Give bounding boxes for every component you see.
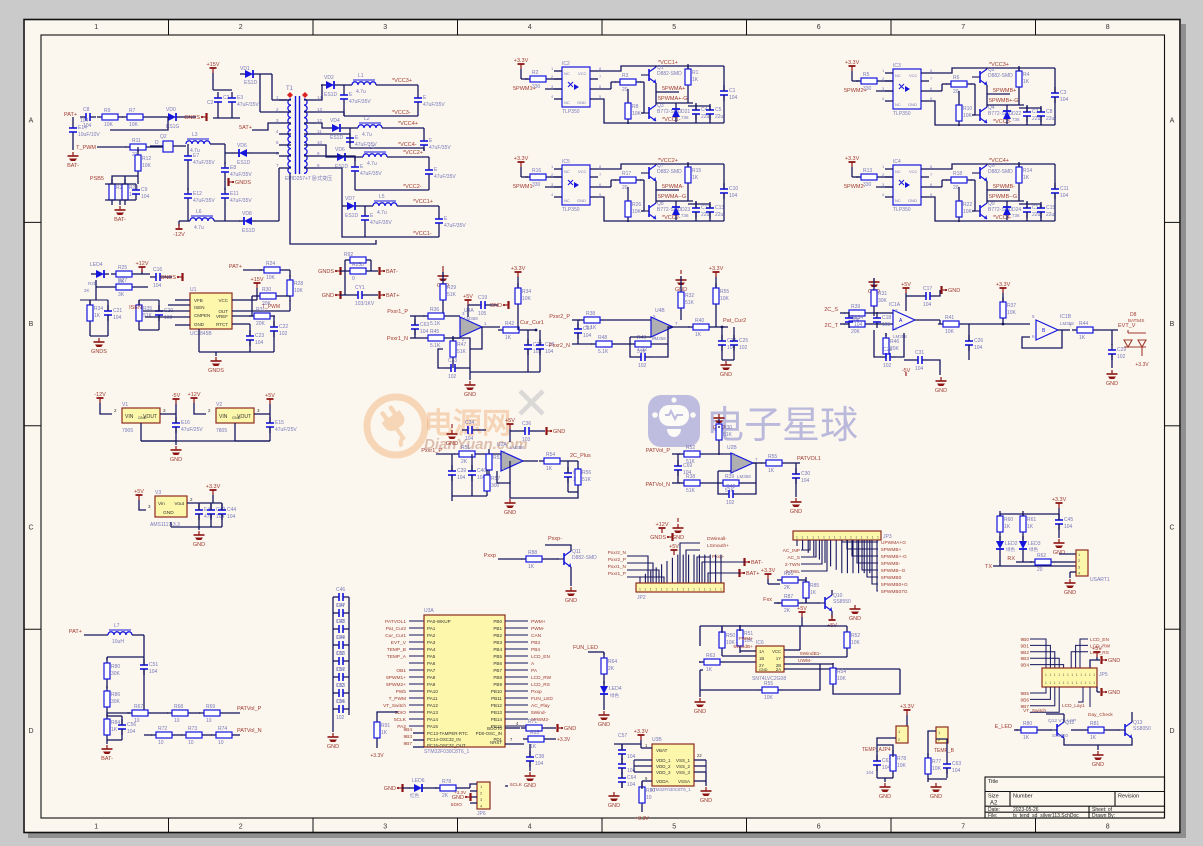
svg-text:IC4: IC4: [893, 159, 901, 165]
svg-text:SS8050: SS8050: [1052, 733, 1069, 738]
svg-text:LM358: LM358: [510, 445, 524, 450]
svg-text:R11: R11: [132, 138, 141, 144]
svg-text:GND: GND: [1092, 762, 1104, 768]
svg-text:1K: 1K: [546, 466, 553, 472]
svg-text:EVT_V: EVT_V: [1118, 323, 1136, 329]
svg-text:E3: E3: [237, 95, 243, 101]
svg-text:10K: 10K: [945, 329, 955, 335]
svg-text:PB14: PB14: [491, 717, 503, 722]
svg-text:9B3: 9B3: [403, 734, 412, 740]
svg-text:1: 1: [828, 536, 830, 540]
svg-text:4.7u: 4.7u: [194, 225, 204, 231]
svg-text:-5V: -5V: [902, 368, 911, 374]
svg-text:PB10: PB10: [491, 689, 503, 694]
svg-text:BAT-: BAT-: [67, 163, 79, 169]
svg-text:PB0: PB0: [493, 619, 502, 624]
svg-text:C33: C33: [448, 358, 457, 364]
svg-text:UPWMA+G: UPWMA+G: [881, 540, 906, 546]
svg-text:51K: 51K: [457, 349, 467, 355]
svg-text:R32: R32: [685, 293, 694, 299]
svg-text:LCD_RW: LCD_RW: [531, 675, 552, 681]
svg-text:1: 1: [1076, 681, 1078, 685]
svg-text:10: 10: [158, 740, 164, 746]
svg-text:VD0: VD0: [166, 107, 176, 113]
svg-text:PATVol_N: PATVol_N: [237, 728, 262, 734]
svg-text:R13: R13: [863, 168, 872, 174]
svg-text:Title: Title: [988, 779, 998, 785]
svg-text:C52: C52: [336, 667, 345, 673]
svg-text:R81: R81: [1090, 721, 1099, 727]
svg-text:NC: NC: [564, 169, 570, 174]
svg-text:736: 736: [681, 213, 689, 218]
svg-text:736: 736: [1012, 117, 1020, 122]
svg-text:9B1: 9B1: [1020, 643, 1029, 649]
svg-text:TEMP_A: TEMP_A: [387, 654, 407, 660]
svg-text:C55: C55: [336, 699, 345, 705]
svg-text:102: 102: [883, 363, 892, 369]
svg-text:+5V: +5V: [134, 489, 144, 495]
svg-text:D882-SMD: D882-SMD: [988, 73, 1013, 79]
svg-text:1: 1: [715, 588, 717, 592]
svg-text:C30: C30: [801, 471, 810, 477]
svg-text:LSmouth+: LSmouth+: [707, 543, 729, 549]
svg-text:VDD_2: VDD_2: [656, 764, 671, 769]
svg-text:*VCC3+: *VCC3+: [392, 78, 412, 84]
svg-text:VCC: VCC: [909, 73, 918, 78]
svg-text:PB1: PB1: [493, 626, 502, 631]
svg-text:OB1: OB1: [396, 668, 406, 674]
svg-text:R9: R9: [104, 108, 111, 114]
svg-text:C10: C10: [729, 186, 738, 192]
svg-text:1: 1: [682, 588, 684, 592]
svg-text:T1: T1: [286, 86, 294, 92]
svg-text:R30: R30: [262, 287, 271, 293]
svg-text:NC: NC: [564, 71, 570, 76]
svg-text:R28: R28: [294, 281, 303, 287]
svg-text:30K: 30K: [111, 671, 121, 677]
svg-text:PB9: PB9: [493, 682, 502, 687]
svg-text:+3.3V: +3.3V: [511, 266, 526, 272]
svg-text:1: 1: [855, 536, 857, 540]
svg-text:ES1D: ES1D: [242, 228, 255, 234]
svg-text:10: 10: [218, 740, 224, 746]
svg-text:1: 1: [796, 536, 798, 540]
svg-text:V2: V2: [216, 402, 222, 408]
svg-text:6: 6: [817, 824, 821, 831]
svg-text:E8: E8: [230, 165, 236, 171]
svg-text:JP6: JP6: [477, 811, 486, 817]
svg-text:GND: GND: [193, 542, 205, 548]
svg-text:104: 104: [627, 754, 636, 760]
svg-text:1K: 1K: [768, 468, 775, 474]
svg-text:LCD_RS: LCD_RS: [531, 682, 550, 688]
svg-text:*VCC4-: *VCC4-: [398, 142, 417, 148]
svg-text:IC3: IC3: [893, 63, 901, 69]
svg-text:1K: 1K: [1004, 524, 1011, 530]
svg-text:R8: R8: [632, 104, 639, 110]
svg-text:C1: C1: [729, 88, 736, 94]
svg-text:1: 1: [807, 536, 809, 540]
svg-text:R67: R67: [134, 704, 143, 710]
svg-text:Cur_Cur1: Cur_Cur1: [520, 320, 544, 326]
svg-text:10: 10: [646, 795, 652, 801]
svg-text:47uF/35V: 47uF/35V: [423, 102, 445, 108]
svg-text:5PWMB-: 5PWMB-: [881, 561, 901, 567]
svg-text:5PWMB+: 5PWMB+: [993, 88, 1016, 94]
svg-text:1: 1: [850, 536, 852, 540]
svg-text:1: 1: [688, 588, 690, 592]
svg-text:+3.3V: +3.3V: [634, 729, 649, 735]
svg-text:PA11: PA11: [427, 696, 438, 701]
svg-text:R7: R7: [129, 108, 136, 114]
svg-text:VIN: VIN: [219, 414, 228, 420]
svg-text:R34: R34: [522, 289, 531, 295]
svg-text:绿色: 绿色: [1029, 546, 1038, 552]
svg-text:20: 20: [953, 89, 959, 95]
svg-text:TLP350: TLP350: [562, 109, 580, 115]
svg-text:R16: R16: [532, 168, 541, 174]
svg-text:红色: 红色: [410, 792, 419, 798]
svg-text:GND: GND: [849, 616, 861, 622]
svg-text:R46: R46: [890, 339, 899, 345]
svg-text:104: 104: [127, 729, 136, 735]
svg-text:PATVol_P: PATVol_P: [646, 448, 671, 454]
svg-text:736: 736: [1012, 213, 1020, 218]
svg-text:C28: C28: [883, 347, 892, 353]
svg-text:1: 1: [818, 536, 820, 540]
svg-text:1: 1: [666, 588, 668, 592]
svg-text:R68: R68: [174, 704, 183, 710]
svg-text:102: 102: [739, 345, 748, 351]
svg-text:20: 20: [953, 185, 959, 191]
svg-text:*VCC3-: *VCC3-: [392, 110, 411, 116]
svg-text:GND: GND: [565, 598, 577, 604]
svg-text:+3.3V: +3.3V: [370, 753, 384, 759]
svg-text:C39: C39: [457, 468, 466, 474]
svg-text:+3.3V: +3.3V: [1135, 362, 1149, 368]
svg-text:PC13-TAMPER-RTC: PC13-TAMPER-RTC: [427, 731, 468, 736]
svg-text:C18: C18: [882, 315, 891, 321]
svg-text:5Wind-: 5Wind-: [531, 710, 547, 716]
svg-text:PB5: PB5: [493, 654, 502, 659]
svg-text:10: 10: [134, 718, 140, 724]
svg-text:R71: R71: [528, 719, 537, 725]
svg-text:VBAT: VBAT: [656, 748, 668, 753]
svg-text:GND: GND: [598, 722, 610, 728]
svg-text:1: 1: [655, 588, 657, 592]
svg-text:PA2: PA2: [427, 633, 436, 638]
svg-text:R54: R54: [546, 452, 555, 458]
svg-text:47uF/25V: 47uF/25V: [275, 427, 297, 433]
svg-text:4: 4: [528, 824, 532, 831]
svg-text:1K: 1K: [692, 175, 699, 181]
svg-text:PB13: PB13: [491, 710, 503, 715]
svg-text:IC1B: IC1B: [1060, 314, 1072, 320]
svg-text:R22: R22: [963, 202, 972, 208]
svg-text:10K: 10K: [851, 640, 861, 646]
svg-text:GND: GND: [464, 392, 476, 398]
svg-text:Drawn By:: Drawn By:: [1092, 813, 1115, 819]
svg-text:ES1D: ES1D: [345, 213, 358, 219]
svg-text:GND: GND: [948, 288, 960, 294]
svg-text:1: 1: [671, 588, 673, 592]
svg-text:C63: C63: [420, 322, 429, 328]
svg-text:C: C: [28, 525, 33, 532]
svg-text:NC: NC: [564, 198, 570, 203]
svg-text:105: 105: [478, 311, 487, 317]
svg-text:+3.3V: +3.3V: [761, 568, 776, 574]
svg-text:1: 1: [1071, 681, 1073, 685]
svg-text:AC_Play: AC_Play: [531, 703, 550, 709]
svg-text:+3.3V: +3.3V: [845, 156, 860, 162]
svg-text:104: 104: [627, 782, 636, 788]
svg-text:DWireall-: DWireall-: [707, 536, 727, 542]
svg-text:C57: C57: [618, 733, 627, 739]
svg-text:UC3845B: UC3845B: [190, 331, 212, 337]
svg-text:+5V: +5V: [669, 544, 679, 550]
svg-text:5PWMB+-G: 5PWMB+-G: [881, 554, 907, 560]
svg-text:104: 104: [1060, 97, 1069, 103]
svg-text:104: 104: [729, 193, 738, 199]
svg-text:GND: GND: [452, 795, 464, 801]
svg-text:GND: GND: [564, 726, 576, 732]
svg-text:9B4: 9B4: [403, 727, 412, 733]
svg-text:*VCC4-: *VCC4-: [993, 215, 1012, 221]
svg-text:R6: R6: [953, 75, 960, 81]
svg-text:104: 104: [420, 329, 429, 335]
svg-text:D882-SMD: D882-SMD: [572, 555, 597, 561]
svg-text:L7: L7: [114, 623, 120, 629]
svg-text:R57: R57: [491, 476, 500, 482]
svg-text:GND: GND: [384, 786, 396, 792]
svg-text:104: 104: [583, 333, 592, 339]
svg-text:10uH: 10uH: [112, 639, 124, 645]
svg-text:1: 1: [861, 536, 863, 540]
svg-text:R60: R60: [1004, 517, 1013, 523]
svg-text:5.1K: 5.1K: [598, 349, 609, 355]
svg-text:104: 104: [683, 470, 692, 476]
svg-text:D: D: [155, 140, 159, 146]
svg-text:R90: R90: [646, 788, 655, 794]
svg-text:PSB5: PSB5: [90, 176, 104, 182]
svg-text:C51: C51: [149, 662, 158, 668]
svg-text:1K: 1K: [505, 335, 512, 341]
svg-text:2K: 2K: [608, 666, 615, 672]
svg-text:E15: E15: [275, 420, 284, 426]
svg-text:2: 2: [239, 24, 243, 31]
svg-text:R42: R42: [505, 321, 514, 327]
svg-text:STM32F030C8T6_1: STM32F030C8T6_1: [650, 787, 691, 792]
svg-text:10K: 10K: [720, 296, 730, 302]
svg-text:PC14-OSC32_IN: PC14-OSC32_IN: [427, 737, 461, 742]
svg-text:C17: C17: [923, 286, 932, 292]
svg-text:4.7u: 4.7u: [377, 210, 387, 216]
svg-text:Q2: Q2: [160, 134, 167, 140]
svg-text:47uF/35V: 47uF/35V: [434, 174, 456, 180]
svg-text:V1: V1: [122, 402, 128, 408]
svg-text:R78: R78: [442, 779, 451, 785]
svg-text:104: 104: [153, 283, 162, 289]
svg-text:1: 1: [709, 588, 711, 592]
svg-text:Pxxr1_N: Pxxr1_N: [387, 336, 408, 342]
svg-text:104: 104: [974, 345, 983, 351]
svg-text:47uF/35V: 47uF/35V: [360, 171, 382, 177]
svg-text:30K: 30K: [111, 699, 121, 705]
svg-text:22: 22: [697, 753, 702, 758]
svg-text:R15: R15: [692, 168, 701, 174]
svg-text:R63: R63: [706, 653, 715, 659]
svg-text:GND: GND: [672, 535, 684, 541]
svg-text:10K: 10K: [932, 766, 942, 772]
svg-text:D: D: [28, 728, 33, 735]
svg-text:VD2: VD2: [324, 75, 334, 81]
svg-text:102: 102: [279, 331, 288, 337]
svg-text:1K: 1K: [111, 727, 118, 733]
svg-text:R2: R2: [532, 70, 539, 76]
svg-text:*VCC2+: *VCC2+: [403, 150, 423, 156]
svg-text:9B6: 9B6: [1020, 697, 1029, 703]
svg-text:104: 104: [866, 770, 874, 775]
svg-text:103: 103: [522, 437, 531, 443]
svg-text:1: 1: [1063, 673, 1065, 677]
svg-text:C8: C8: [1046, 109, 1053, 115]
svg-text:C69: C69: [683, 463, 692, 469]
svg-text:R91: R91: [381, 723, 390, 729]
svg-text:102: 102: [336, 715, 345, 721]
svg-text:VD8: VD8: [242, 211, 252, 217]
svg-text:绿色: 绿色: [610, 692, 619, 698]
svg-text:PB3: PB3: [531, 640, 540, 646]
svg-text:Pxxp: Pxxp: [531, 689, 542, 695]
svg-text:1K: 1K: [1023, 79, 1030, 85]
svg-text:NC: NC: [895, 102, 901, 107]
svg-text:Pxxr2_P: Pxxr2_P: [608, 557, 626, 563]
svg-text:5PWMB--G: 5PWMB--G: [989, 194, 1017, 200]
svg-text:6: 6: [817, 24, 821, 31]
svg-text:R14: R14: [1023, 168, 1032, 174]
svg-text:10K: 10K: [266, 275, 276, 281]
svg-text:*VCC1-: *VCC1-: [662, 117, 681, 123]
svg-text:R40: R40: [695, 318, 704, 324]
svg-text:1: 1: [812, 536, 814, 540]
svg-text:1B: 1B: [759, 656, 764, 661]
svg-text:47uF/35V: 47uF/35V: [349, 99, 371, 105]
svg-text:RX: RX: [1007, 556, 1015, 562]
svg-text:8: 8: [1106, 24, 1110, 31]
svg-text:GNDS: GNDS: [318, 269, 334, 275]
svg-text:1: 1: [94, 824, 98, 831]
svg-text:+3.3V: +3.3V: [557, 737, 571, 743]
svg-text:C64: C64: [627, 775, 636, 781]
svg-text:R41: R41: [945, 315, 954, 321]
svg-text:2C_S: 2C_S: [824, 307, 838, 313]
svg-text:GND: GND: [720, 372, 732, 378]
svg-text:PA8: PA8: [427, 675, 436, 680]
svg-text:1: 1: [677, 588, 679, 592]
svg-text:BAT54S: BAT54S: [1128, 318, 1144, 323]
svg-text:104: 104: [854, 322, 863, 328]
svg-text:7905: 7905: [122, 428, 133, 434]
svg-text:Fxx: Fxx: [763, 597, 772, 603]
svg-text:103: 103: [164, 315, 173, 321]
svg-text:5AT+: 5AT+: [239, 125, 252, 131]
svg-text:LM358: LM358: [464, 316, 478, 321]
svg-text:BAT-: BAT-: [101, 756, 113, 762]
svg-text:PATVol_N: PATVol_N: [645, 482, 670, 488]
svg-text:4.7u: 4.7u: [367, 161, 377, 167]
svg-text:1K: 1K: [1023, 175, 1030, 181]
svg-text:R48: R48: [598, 335, 607, 341]
svg-text:AC_S: AC_S: [787, 555, 800, 561]
svg-text:GND: GND: [322, 293, 334, 299]
svg-text:GND: GND: [163, 510, 174, 516]
svg-text:+5V: +5V: [505, 418, 515, 424]
svg-text:C19: C19: [478, 295, 487, 301]
svg-text:*VCC2-: *VCC2-: [662, 215, 681, 221]
svg-text:A: A: [29, 118, 34, 125]
svg-text:*VCC3-: *VCC3-: [993, 119, 1012, 125]
svg-text:47uF/35V: 47uF/35V: [444, 223, 466, 229]
svg-text:3K: 3K: [118, 292, 125, 298]
svg-text:20: 20: [1037, 567, 1043, 573]
svg-text:PWb: PWb: [396, 689, 407, 695]
svg-text:1: 1: [1093, 681, 1095, 685]
svg-text:PC15-OSC32_OUT: PC15-OSC32_OUT: [427, 743, 466, 748]
svg-text:PB6: PB6: [493, 661, 502, 666]
svg-text:LCD_Lay1: LCD_Lay1: [1062, 703, 1085, 709]
svg-text:+3.3V: +3.3V: [900, 704, 915, 710]
svg-text:GND: GND: [577, 100, 586, 105]
svg-text:1: 1: [650, 588, 652, 592]
svg-text:20K: 20K: [851, 329, 861, 335]
svg-text:VOUT: VOUT: [237, 414, 251, 420]
svg-text:Pxxr1_P: Pxxr1_P: [421, 448, 442, 454]
svg-text:LM358: LM358: [737, 474, 751, 479]
svg-text:1K: 1K: [381, 730, 388, 736]
svg-text:5DIO: 5DIO: [395, 710, 406, 716]
svg-text:B: B: [1170, 321, 1175, 328]
svg-text:GND: GND: [490, 303, 502, 309]
svg-text:-12V: -12V: [94, 392, 106, 398]
svg-text:5WindB1-: 5WindB1-: [800, 651, 821, 657]
svg-text:1K: 1K: [1023, 735, 1030, 741]
svg-text:10: 10: [174, 718, 180, 724]
svg-text:JP5: JP5: [1099, 672, 1108, 678]
svg-text:1: 1: [1093, 673, 1095, 677]
svg-text:7805: 7805: [216, 428, 227, 434]
svg-text:4.7u: 4.7u: [362, 132, 372, 138]
svg-text:R69: R69: [206, 704, 215, 710]
svg-text:GNDS: GNDS: [184, 115, 200, 121]
svg-text:TLP350: TLP350: [893, 111, 911, 117]
svg-text:T_PWM: T_PWM: [76, 145, 96, 151]
svg-text:1K: 1K: [810, 590, 817, 596]
svg-text:PA4: PA4: [427, 647, 436, 652]
svg-text:1: 1: [704, 588, 706, 592]
svg-text:AC_INP: AC_INP: [783, 548, 800, 554]
svg-text:47uF/35V: 47uF/35V: [193, 198, 215, 204]
svg-text:2K: 2K: [461, 459, 468, 465]
svg-text:IC6: IC6: [756, 640, 764, 646]
svg-text:1: 1: [1045, 681, 1047, 685]
svg-text:1Y: 1Y: [776, 656, 781, 661]
svg-text:E16: E16: [181, 420, 190, 426]
svg-text:GND: GND: [879, 794, 891, 800]
svg-text:5PWMB0: 5PWMB0: [881, 575, 902, 581]
svg-text:4: 4: [528, 24, 532, 31]
svg-text:13: 13: [317, 107, 323, 112]
svg-text:GND: GND: [759, 668, 768, 672]
